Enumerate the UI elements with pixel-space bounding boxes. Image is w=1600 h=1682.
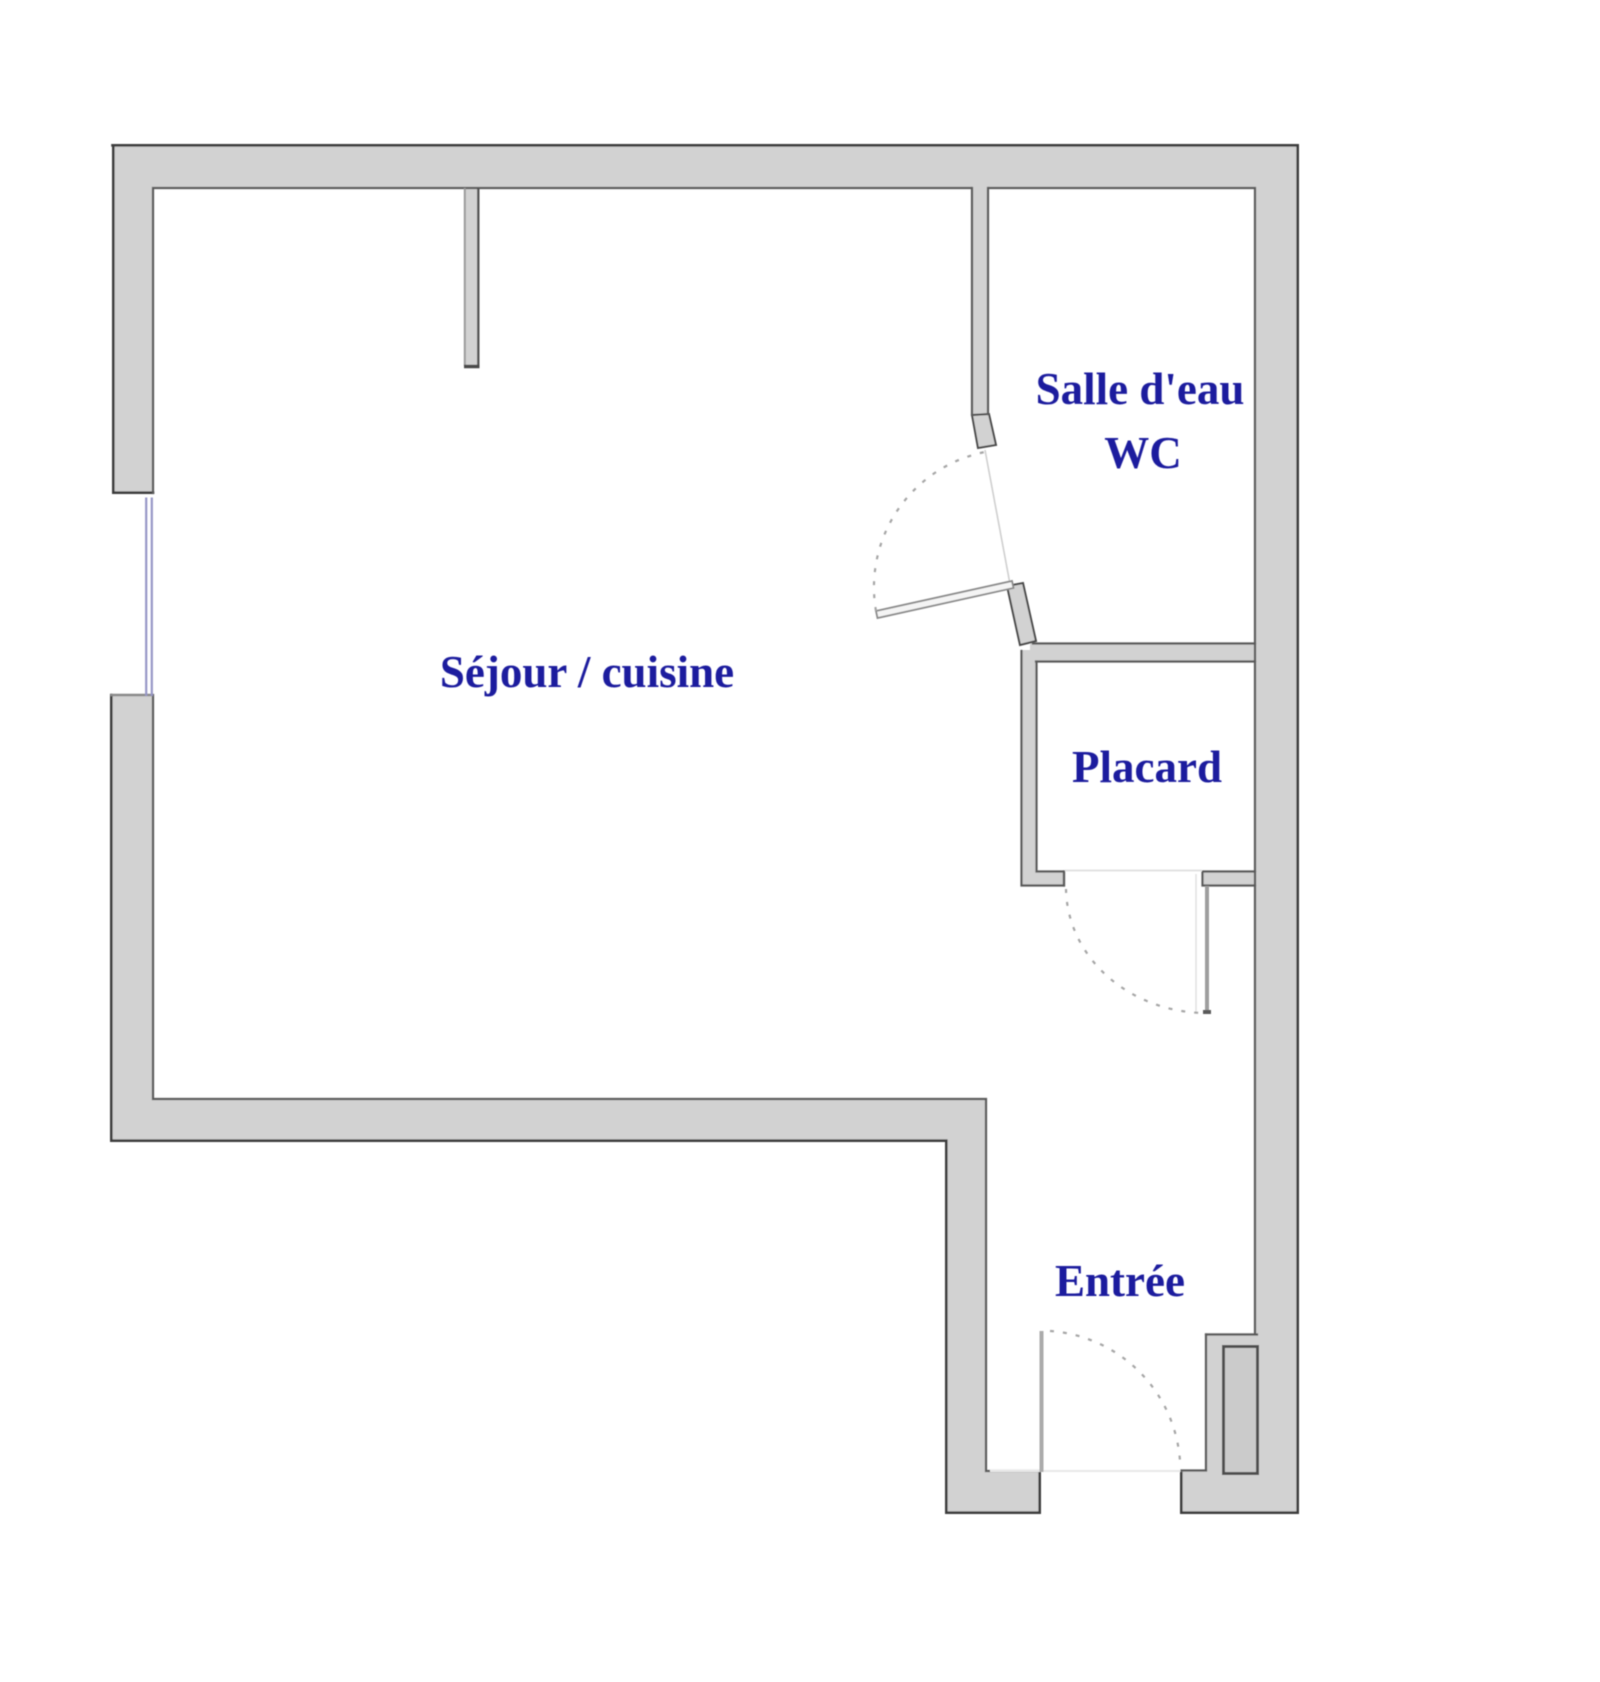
svg-text:Séjour / cuisine: Séjour / cuisine [440,647,734,697]
svg-text:Salle d'eau: Salle d'eau [1036,364,1245,414]
svg-text:Placard: Placard [1072,742,1222,792]
svg-text:Entrée: Entrée [1055,1256,1185,1306]
svg-text:WC: WC [1104,428,1182,478]
